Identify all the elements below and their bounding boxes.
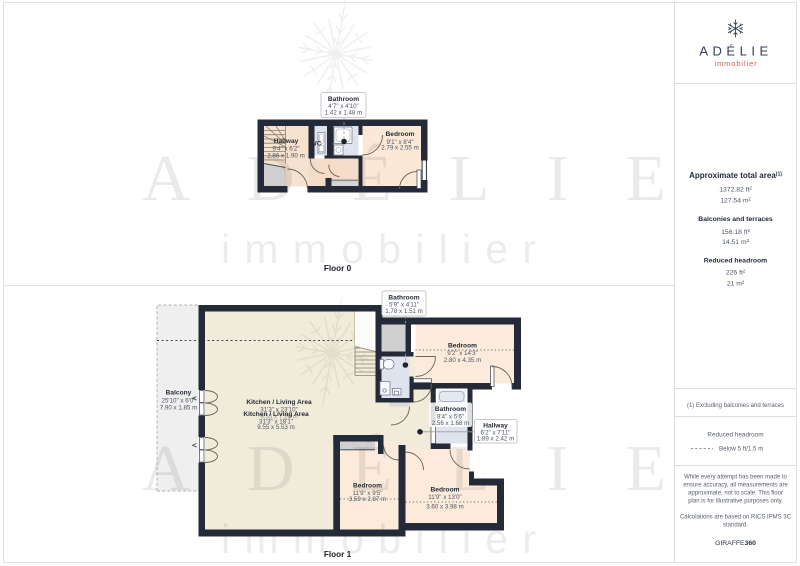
svg-text:2.56 x 1.68 m: 2.56 x 1.68 m [432, 420, 470, 427]
svg-text:2.86 x 1.90 m: 2.86 x 1.90 m [267, 153, 305, 160]
svg-text:Kitchen / Living Area: Kitchen / Living Area [243, 411, 309, 418]
svg-text:1372.82 ft²: 1372.82 ft² [719, 187, 752, 194]
svg-text:3.59 x 2.87 m: 3.59 x 2.87 m [349, 496, 387, 503]
svg-text:immobilier: immobilier [221, 226, 536, 272]
svg-text:9.55 x 5.53 m: 9.55 x 5.53 m [257, 424, 295, 431]
svg-text:9'4" x 6'2": 9'4" x 6'2" [272, 146, 299, 153]
svg-text:1.42 x 1.48 m: 1.42 x 1.48 m [325, 110, 363, 117]
svg-text:Kitchen / Living Area: Kitchen / Living Area [246, 399, 312, 406]
svg-text:14.51 m²: 14.51 m² [722, 239, 750, 246]
svg-text:While every attempt has been m: While every attempt has been made to [684, 475, 787, 481]
svg-text:25'10" x 6'0": 25'10" x 6'0" [162, 398, 196, 405]
svg-text:Balconies and terraces: Balconies and terraces [698, 216, 773, 223]
svg-text:127.54 m²: 127.54 m² [720, 198, 751, 205]
svg-text:plan is for illustrative purpo: plan is for illustrative purposes only. [688, 499, 783, 505]
svg-text:Reduced headroom: Reduced headroom [707, 432, 763, 439]
svg-text:Floor 0: Floor 0 [324, 264, 352, 273]
svg-text:Hallway: Hallway [274, 138, 299, 145]
svg-text:ensure accuracy, all measureme: ensure accuracy, all measurements are [683, 483, 788, 489]
svg-text:1.78 x 1.51 m: 1.78 x 1.51 m [385, 308, 423, 315]
svg-text:1.89 x 2.42 m: 1.89 x 2.42 m [477, 436, 515, 443]
svg-text:156.18 ft²: 156.18 ft² [721, 229, 750, 236]
svg-text:7.90 x 1.85 m: 7.90 x 1.85 m [160, 405, 198, 412]
svg-text:Bedroom: Bedroom [386, 131, 415, 138]
svg-text:Bathroom: Bathroom [388, 295, 419, 302]
svg-text:immobilier: immobilier [221, 516, 536, 562]
svg-text:21 m²: 21 m² [727, 281, 745, 288]
svg-text:Reduced headroom: Reduced headroom [704, 258, 767, 265]
svg-text:2.79 x 2.55 m: 2.79 x 2.55 m [381, 145, 419, 152]
svg-text:Bathroom: Bathroom [328, 96, 359, 103]
svg-text:Approximate total area(1): Approximate total area(1) [689, 171, 782, 180]
svg-text:Bathroom: Bathroom [435, 406, 466, 413]
svg-text:Bedroom: Bedroom [448, 343, 477, 350]
svg-text:ADÉLIE: ADÉLIE [699, 44, 772, 59]
svg-text:Bedroom: Bedroom [431, 487, 460, 494]
svg-text:Balcony: Balcony [166, 390, 192, 397]
svg-text:Below 5 ft/1.5 m: Below 5 ft/1.5 m [719, 446, 763, 453]
svg-text:GIRAFFE360: GIRAFFE360 [715, 540, 756, 547]
svg-text:approximate, not to scale. Thi: approximate, not to scale. This floor [688, 491, 783, 497]
svg-text:9'2" x 14'3": 9'2" x 14'3" [447, 350, 478, 357]
svg-text:WC: WC [311, 141, 322, 148]
svg-text:standard.: standard. [723, 523, 748, 529]
svg-text:Floor 1: Floor 1 [324, 550, 352, 559]
svg-text:226 ft²: 226 ft² [726, 270, 746, 277]
svg-text:3.60 x 3.98 m: 3.60 x 3.98 m [426, 504, 464, 511]
svg-text:(1) Excluding balconies and te: (1) Excluding balconies and terraces [687, 403, 784, 409]
svg-text:11'9" x 13'0": 11'9" x 13'0" [428, 494, 461, 501]
svg-text:Calculations are based on RICS: Calculations are based on RICS IPMS 3C [680, 515, 792, 521]
svg-text:immobilier: immobilier [714, 59, 757, 68]
svg-text:2.80 x 4.35 m: 2.80 x 4.35 m [444, 357, 482, 364]
svg-text:Bedroom: Bedroom [353, 483, 382, 490]
